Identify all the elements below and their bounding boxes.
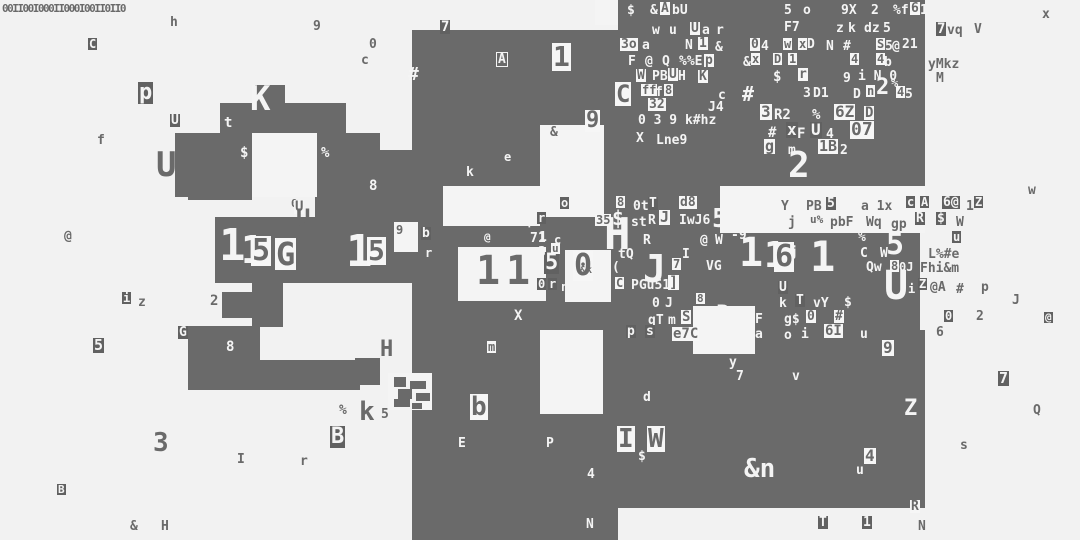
glyph: dz: [864, 22, 880, 35]
glyph: 9: [585, 110, 600, 132]
glyph: Z: [918, 278, 927, 290]
glyph: b: [470, 394, 488, 420]
glyph: vY: [813, 297, 829, 310]
glyph: 2: [876, 77, 889, 99]
glyph: b: [884, 56, 892, 69]
glyph: r: [716, 24, 724, 37]
glyph: K: [250, 82, 270, 116]
glyph: C: [860, 247, 868, 260]
glyph: 0: [806, 310, 816, 323]
glyph: 5: [367, 237, 386, 265]
glyph: U: [778, 281, 788, 294]
glyph: 6: [774, 242, 794, 272]
glyph: &k: [580, 266, 592, 276]
glyph: 2: [788, 148, 810, 184]
glyph: U: [668, 68, 678, 81]
glyph: r: [548, 278, 557, 290]
glyph: 1: [920, 4, 928, 17]
glyph: &: [573, 200, 581, 213]
glyph: t: [224, 116, 232, 130]
glyph: 0t: [633, 200, 649, 213]
glyph: s: [645, 325, 655, 338]
glyph: f: [655, 86, 663, 99]
glyph: 4: [761, 40, 769, 53]
glyph: 1: [698, 37, 708, 50]
glyph: p: [981, 281, 989, 294]
glyph: H: [678, 70, 686, 83]
glyph: 1: [739, 233, 763, 273]
glyph: 1: [862, 516, 872, 529]
glyph: #: [742, 84, 754, 104]
glyph: 4: [587, 468, 595, 481]
glyph: k: [547, 200, 555, 213]
glyph: @: [700, 234, 708, 247]
glyph: 5: [251, 236, 271, 266]
glyph: 5: [93, 338, 104, 353]
glyph: VG: [706, 260, 722, 273]
glyph: a 1x: [861, 200, 892, 213]
glyph: #: [843, 40, 851, 53]
glyph: G: [178, 326, 188, 339]
glyph: I: [682, 248, 690, 261]
glyph: R: [910, 500, 920, 513]
glyph: B: [57, 484, 66, 495]
glyph: W: [715, 234, 723, 247]
ink-block: [394, 399, 410, 407]
glyph: vq: [947, 24, 963, 37]
glyph: 7: [440, 20, 450, 34]
glyph: #: [834, 310, 844, 323]
glyph: H: [380, 339, 393, 361]
glyph: f: [97, 134, 105, 147]
glyph: 8: [616, 196, 625, 208]
glyph: 5: [381, 408, 389, 421]
glyph: $: [612, 208, 624, 228]
glyph: 0: [652, 297, 660, 310]
glyph: J: [1012, 294, 1020, 307]
glyph: Qw: [866, 261, 882, 274]
glyph: %: [339, 404, 347, 417]
glyph: T: [818, 516, 828, 529]
glyph: d: [643, 391, 651, 404]
glyph: 9: [882, 340, 894, 356]
glyph: 5: [544, 252, 559, 274]
glyph: Lne9: [656, 134, 687, 147]
glyph: 9: [313, 20, 321, 33]
glyph: 0: [944, 310, 953, 322]
glyph: m: [487, 341, 496, 353]
glyph: n: [866, 85, 875, 97]
paper-block: [595, 0, 618, 25]
glyph: 1: [810, 236, 835, 278]
paper-block: [458, 247, 546, 301]
glyph: J: [643, 250, 666, 288]
ink-block: [355, 358, 380, 385]
glyph: 71: [530, 232, 546, 245]
glyph: q: [402, 232, 409, 244]
glyph: S: [876, 38, 885, 50]
glyph: $: [627, 4, 635, 17]
glyph: U: [296, 206, 310, 230]
glyph: tQ: [618, 248, 634, 261]
glyph: N: [918, 520, 926, 533]
glyph: 8: [696, 293, 705, 304]
glyph: T: [648, 197, 658, 210]
glyph: J: [659, 210, 670, 225]
glyph: $: [638, 450, 646, 463]
glyph: D: [807, 38, 815, 51]
glyph: 4: [864, 448, 876, 464]
glyph: I: [237, 453, 245, 466]
glyph: A: [920, 196, 929, 208]
glyph: @: [645, 55, 653, 68]
glyph: 4: [850, 53, 859, 65]
glyph: IwJ6: [679, 214, 710, 227]
glyph: 3: [760, 104, 772, 120]
glyph: N: [826, 40, 834, 53]
glyph: Q: [662, 55, 670, 68]
glyph: G: [275, 238, 296, 270]
glyph: ]: [668, 275, 679, 290]
glyph: 2: [976, 310, 984, 323]
glyph: E: [458, 437, 466, 450]
glyph: Q: [1033, 404, 1041, 417]
glyph: 0: [750, 38, 760, 51]
glyph: x: [786, 122, 798, 138]
glyph: o: [560, 197, 569, 209]
glyph: F: [755, 313, 763, 326]
ink-block: [188, 360, 360, 390]
glyph: @: [892, 40, 900, 53]
glyph: 5: [712, 206, 728, 232]
paper-block: [540, 330, 603, 414]
glyph: &: [650, 4, 658, 17]
glyph: %: [321, 146, 329, 160]
glyph: z: [138, 296, 146, 309]
glyph: W: [956, 216, 964, 229]
glyph: 1: [966, 200, 974, 213]
ink-block: [188, 326, 260, 360]
glyph: PB: [652, 70, 668, 83]
glyph: T: [795, 294, 805, 307]
glyph: g: [764, 139, 775, 154]
glyph: k: [779, 297, 787, 310]
glyph: x: [751, 53, 760, 65]
glyph: Y: [781, 200, 789, 213]
glyph: 1: [506, 251, 530, 291]
glyph: J: [665, 297, 673, 310]
glyph: F7: [784, 21, 800, 34]
ink-block: [398, 389, 412, 399]
glyph: 7: [998, 371, 1009, 386]
glyph: 0: [369, 38, 377, 51]
glyph: 3: [803, 87, 811, 100]
glyph: p: [138, 82, 153, 104]
glyph: r: [300, 455, 308, 468]
glyph: %%E: [679, 55, 702, 68]
glyph: @: [484, 232, 491, 243]
glyph: L%#e: [928, 248, 959, 261]
glyph: 8: [664, 84, 673, 96]
glyph: k: [359, 399, 375, 425]
glyph: U: [884, 266, 908, 306]
glyph: H: [161, 520, 169, 533]
glyph: 6Z: [834, 104, 855, 120]
binary-pattern: 00II00I000II000I00II0II0: [2, 2, 125, 15]
glyph: e: [504, 151, 511, 163]
glyph: R: [915, 212, 925, 225]
ink-block: [222, 292, 260, 318]
glyph: F: [628, 55, 636, 68]
glyph: W: [636, 69, 646, 82]
glyph: 5: [886, 230, 904, 260]
ink-block: [416, 393, 430, 401]
ink-block: [188, 180, 252, 200]
glyph: i: [908, 283, 915, 295]
glyph: $: [844, 296, 852, 309]
glyph: 35: [595, 214, 611, 226]
glyph: &: [743, 56, 751, 69]
glyph: &: [550, 126, 558, 139]
glyph: 07: [850, 121, 874, 139]
glyph: r: [798, 68, 808, 81]
glyph: pbF: [830, 216, 853, 229]
glyph: i: [801, 328, 809, 341]
glyph: u: [669, 24, 677, 37]
glyph: R: [648, 214, 656, 227]
glyph: Wq: [866, 216, 882, 229]
glyph: c: [718, 89, 726, 102]
glyph: p: [704, 54, 714, 67]
glyph: a: [642, 39, 650, 52]
glyph: y: [729, 356, 737, 369]
glyph: 1: [788, 53, 797, 65]
glyph: e7C: [672, 327, 699, 341]
glyph: D1: [813, 87, 829, 100]
glyph: A: [496, 52, 508, 67]
glyph: 2: [871, 4, 879, 17]
glyph: 1: [552, 43, 571, 71]
glyph: 0 3 9 k#hz: [638, 114, 716, 127]
glyph: n: [561, 281, 568, 293]
glyph: c: [361, 54, 369, 67]
glyph: $: [522, 204, 536, 228]
glyph: 7: [936, 22, 946, 36]
glyph: 3o: [620, 38, 638, 51]
glyph: r: [425, 247, 432, 259]
glyph: 6I: [824, 324, 843, 338]
glyph: $: [240, 146, 248, 160]
ink-block: [315, 180, 360, 220]
glyph: bU: [672, 4, 688, 17]
glyph: A: [660, 2, 670, 15]
glyph: &: [715, 41, 723, 54]
glyph: w: [783, 38, 792, 50]
glyph: 6: [910, 2, 920, 15]
glyph: v: [792, 370, 800, 383]
glyph: W: [647, 426, 665, 452]
glyph: @A: [930, 281, 946, 294]
glyph: S: [681, 310, 691, 324]
glyph: 2: [840, 144, 848, 157]
glyph: st: [631, 216, 647, 229]
glyph: u: [952, 231, 961, 243]
glyph: C: [88, 38, 97, 50]
glitch-canvas: 00II00I000II000I00II0II0 h9CpUUf@Kt$%80U…: [0, 0, 1080, 540]
glyph: %: [858, 231, 866, 244]
glyph: x: [1042, 8, 1050, 21]
glyph: w: [652, 24, 660, 37]
glyph: a: [755, 328, 763, 341]
glyph: Z: [974, 196, 983, 208]
glyph: o: [784, 329, 792, 342]
glyph: #: [408, 66, 419, 84]
glyph: P: [546, 437, 554, 450]
glyph: u%: [810, 214, 823, 225]
glyph: a: [702, 24, 710, 37]
glyph: V: [974, 23, 982, 36]
glyph: U: [690, 22, 700, 35]
glyph: N: [586, 518, 594, 531]
ink-block: [410, 381, 426, 389]
glyph: %f: [893, 4, 909, 17]
glyph: yMkz: [928, 58, 959, 71]
glyph: P: [716, 304, 729, 326]
glyph: r: [537, 212, 546, 224]
glyph: B: [330, 426, 345, 448]
glyph: $: [773, 70, 781, 84]
glyph: 2: [210, 294, 218, 308]
glyph: F: [797, 127, 805, 141]
glyph: Z: [904, 398, 917, 420]
glyph: 8: [369, 179, 377, 193]
glyph: 3: [153, 430, 169, 456]
glyph: g$: [784, 313, 800, 326]
paper-block: [252, 133, 317, 197]
glyph: 1B: [818, 139, 838, 154]
glyph: C: [615, 277, 624, 289]
glyph: $: [936, 212, 946, 225]
glyph: d8: [679, 196, 697, 209]
glyph: U: [156, 148, 176, 182]
glyph: N: [685, 39, 693, 52]
glyph: 5: [826, 197, 836, 210]
glyph: s: [960, 439, 968, 452]
glyph: Fhi&m: [920, 262, 959, 275]
glyph: u: [551, 243, 560, 254]
glyph: 5: [883, 22, 891, 35]
glyph: 0: [537, 278, 546, 290]
glyph: 8: [226, 340, 234, 354]
glyph: 5: [905, 88, 913, 101]
glyph: k: [466, 166, 474, 179]
glyph: k: [848, 22, 856, 35]
glyph: &: [130, 520, 138, 533]
glyph: D: [864, 106, 874, 120]
glyph: X: [636, 132, 644, 145]
glyph: 6@: [942, 196, 960, 209]
glyph: 9: [843, 72, 851, 85]
glyph: p: [626, 325, 636, 338]
glyph: 9X: [841, 4, 857, 17]
glyph: R: [643, 234, 651, 247]
glyph: b: [421, 227, 431, 240]
glyph: 5: [784, 4, 792, 17]
glyph: 3: [538, 246, 546, 259]
glyph: #: [956, 283, 964, 296]
glyph: D: [853, 88, 861, 101]
glyph: h: [170, 16, 178, 29]
glyph: &n: [744, 456, 775, 482]
glyph: M: [936, 72, 944, 85]
glyph: u: [856, 464, 864, 477]
glyph: @: [1044, 312, 1053, 323]
glyph: $y: [586, 200, 602, 213]
glyph: u: [860, 328, 868, 341]
glyph: i: [122, 292, 131, 304]
glyph: 1: [476, 251, 500, 291]
glyph: (: [612, 261, 620, 274]
glyph: 21: [902, 38, 918, 51]
glyph: w: [1028, 184, 1036, 197]
glyph: D: [773, 53, 782, 65]
glyph: U: [810, 122, 822, 138]
glyph: x: [798, 38, 807, 50]
ink-block: [412, 403, 422, 409]
glyph: o: [803, 4, 811, 17]
glyph: c: [906, 196, 915, 208]
glyph: X: [514, 309, 522, 323]
glyph: 6: [936, 326, 944, 339]
ink-block: [220, 103, 346, 133]
glyph: 7: [672, 258, 681, 270]
glyph: C: [615, 82, 631, 106]
ink-block: [394, 377, 406, 387]
glyph: j: [788, 216, 796, 229]
glyph: 7: [736, 370, 744, 383]
glyph: 4: [896, 86, 905, 98]
glyph: K: [698, 70, 708, 83]
glyph: @: [64, 230, 72, 243]
glyph: I: [617, 426, 635, 452]
glyph: U: [170, 114, 180, 127]
glyph: PB: [806, 200, 822, 213]
glyph: z: [836, 22, 844, 35]
